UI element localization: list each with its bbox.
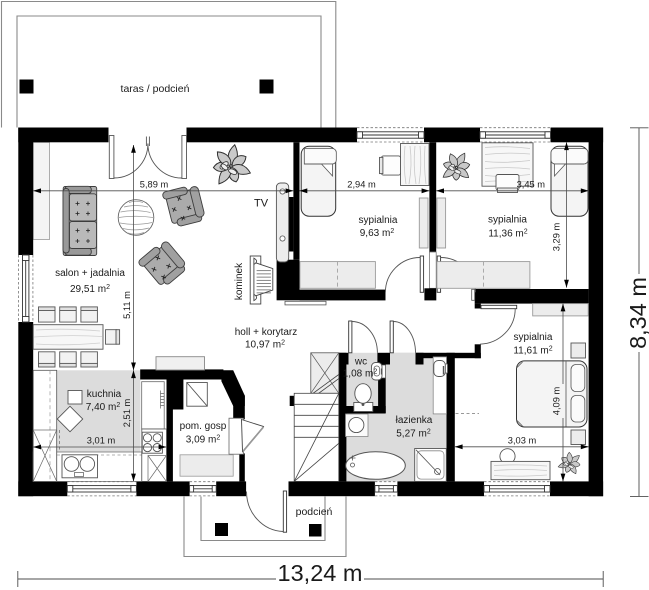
svg-text:5,11 m: 5,11 m <box>122 291 132 319</box>
svg-text:13,24 m: 13,24 m <box>278 560 363 586</box>
svg-text:10,97 m2: 10,97 m2 <box>245 340 285 351</box>
svg-text:holl + korytarz: holl + korytarz <box>235 327 298 338</box>
svg-text:9,63 m2: 9,63 m2 <box>360 228 395 239</box>
svg-text:sypialnia: sypialnia <box>359 215 398 226</box>
svg-text:3,45 m: 3,45 m <box>517 180 546 190</box>
svg-text:taras / podcień: taras / podcień <box>121 83 190 95</box>
svg-text:salon + jadalnia: salon + jadalnia <box>55 268 125 279</box>
svg-text:4,09 m: 4,09 m <box>552 387 562 416</box>
svg-text:2,94 m: 2,94 m <box>347 180 376 190</box>
svg-text:5,27 m2: 5,27 m2 <box>396 429 431 440</box>
svg-text:pom. gosp: pom. gosp <box>180 421 227 432</box>
svg-text:3,01 m: 3,01 m <box>87 436 116 446</box>
svg-text:29,51 m2: 29,51 m2 <box>70 284 110 295</box>
svg-text:7,40 m2: 7,40 m2 <box>86 402 121 413</box>
svg-text:TV: TV <box>254 198 269 210</box>
svg-text:kominek: kominek <box>234 262 245 300</box>
svg-text:3,29 m: 3,29 m <box>552 223 562 252</box>
svg-text:kuchnia: kuchnia <box>87 389 122 400</box>
svg-text:1,08 m2: 1,08 m2 <box>343 369 378 380</box>
svg-text:8,34 m: 8,34 m <box>625 277 649 349</box>
svg-text:11,61 m2: 11,61 m2 <box>513 346 552 357</box>
svg-text:3,03 m: 3,03 m <box>508 436 537 446</box>
svg-text:podcień: podcień <box>296 506 333 518</box>
svg-text:wc: wc <box>354 357 367 368</box>
svg-text:2,51 m: 2,51 m <box>122 399 132 428</box>
svg-text:5,89 m: 5,89 m <box>140 180 169 190</box>
svg-text:3,09 m2: 3,09 m2 <box>186 435 221 446</box>
svg-text:łazienka: łazienka <box>396 415 433 426</box>
svg-text:11,36 m2: 11,36 m2 <box>488 229 527 240</box>
svg-text:sypialnia: sypialnia <box>514 332 553 343</box>
svg-text:sypialnia: sypialnia <box>488 215 527 226</box>
